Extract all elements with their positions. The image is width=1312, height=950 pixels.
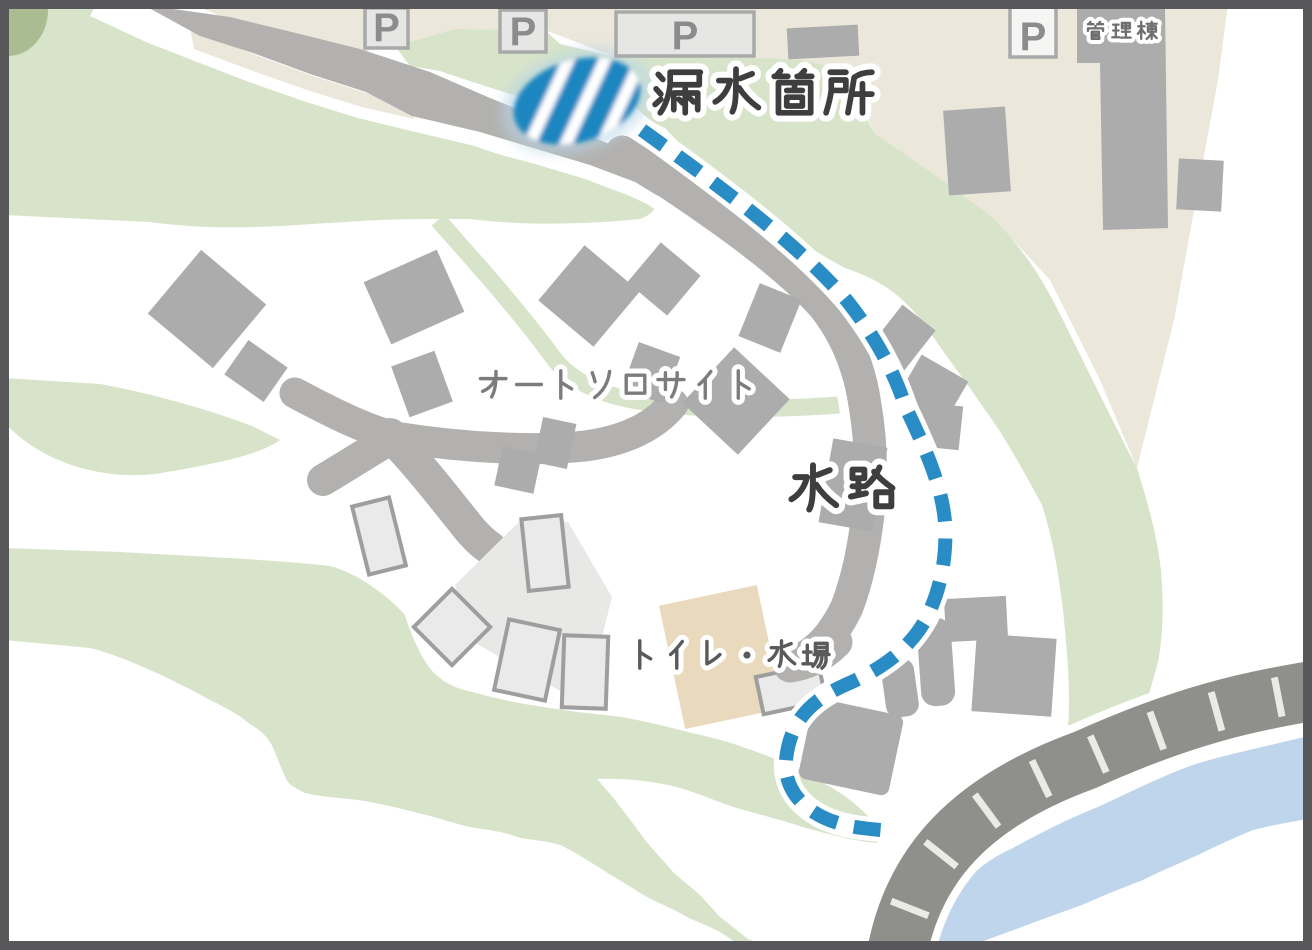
svg-text:P: P xyxy=(510,10,537,54)
svg-text:P: P xyxy=(1020,15,1047,59)
svg-text:P: P xyxy=(672,14,699,58)
svg-text:P: P xyxy=(373,6,400,50)
